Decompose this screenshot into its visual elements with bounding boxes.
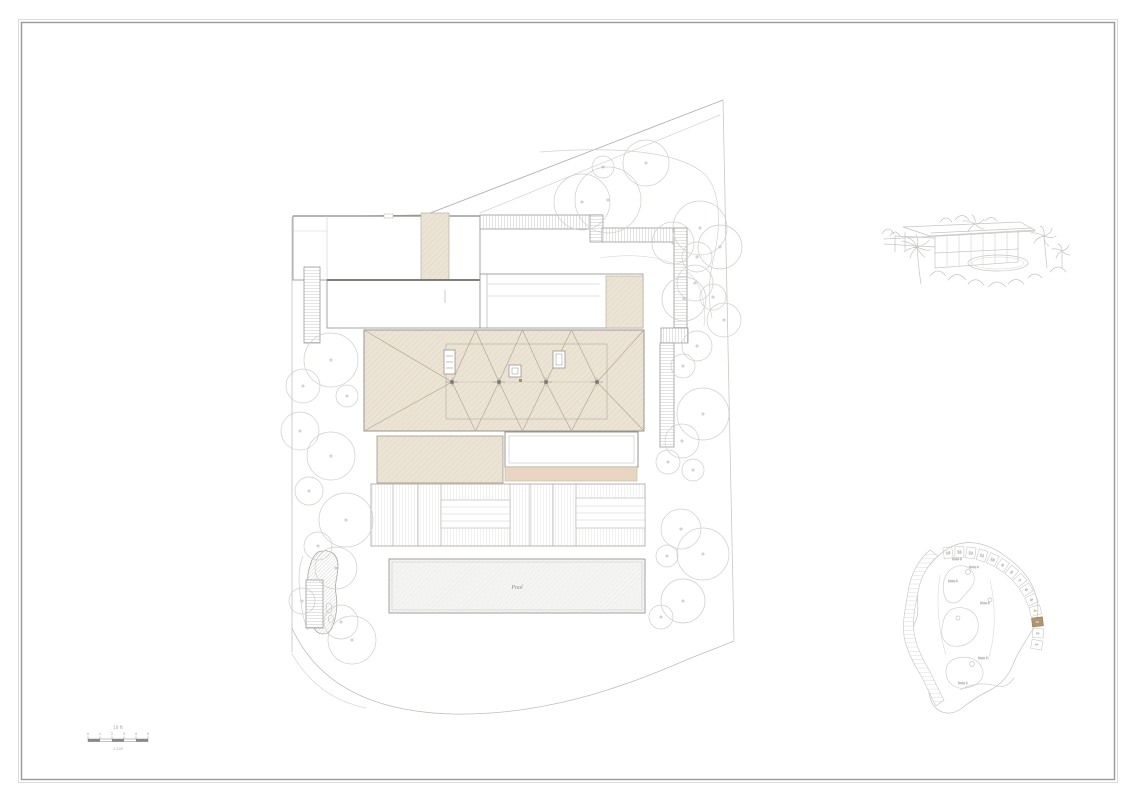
svg-text:2: 2 <box>1036 632 1040 634</box>
scale-bar-title: 10 ft <box>113 725 123 730</box>
svg-text:13: 13 <box>957 550 961 554</box>
svg-text:Hole 5: Hole 5 <box>980 601 990 605</box>
svg-text:0: 0 <box>87 732 89 736</box>
svg-text:Hole 2: Hole 2 <box>948 579 958 583</box>
key-map-terrace-plots <box>903 550 944 706</box>
scale-ratio-note: 1:200 <box>113 747 124 751</box>
pool-label: Pool <box>510 585 523 591</box>
svg-text:Hole 4: Hole 4 <box>969 565 979 569</box>
swimming-pool: Pool <box>389 559 645 613</box>
svg-text:5: 5 <box>1029 598 1034 602</box>
svg-text:3: 3 <box>123 732 125 736</box>
drawing-sheet: Pool <box>0 0 1136 802</box>
location-key-map: 1413121110987654321 Hole 3Hole 4Hole 2Ho… <box>903 543 1043 713</box>
house-elevation-sketch <box>882 215 1070 287</box>
timber-deck <box>371 484 645 546</box>
svg-text:5: 5 <box>147 732 149 736</box>
svg-text:11: 11 <box>979 553 984 558</box>
sketch-boulders <box>930 267 1066 287</box>
key-map-hole-labels: Hole 3Hole 4Hole 2Hole 5Hole 7Hole 1 <box>948 557 990 685</box>
palm-tree-sketch <box>902 215 1070 284</box>
svg-text:1: 1 <box>1034 643 1038 646</box>
scale-bar: 10 ft 012345 1:200 <box>87 725 149 751</box>
architectural-site-plan: Pool <box>0 0 1136 802</box>
svg-text:10: 10 <box>990 557 996 562</box>
svg-text:8: 8 <box>1009 570 1013 574</box>
svg-text:14: 14 <box>946 551 951 556</box>
main-roof <box>364 330 644 431</box>
svg-text:4: 4 <box>135 732 137 736</box>
svg-text:6: 6 <box>1024 588 1029 592</box>
svg-text:Hole 1: Hole 1 <box>958 681 968 685</box>
stone-feature <box>299 551 338 634</box>
svg-text:3: 3 <box>1035 621 1039 624</box>
svg-text:4: 4 <box>1033 609 1037 612</box>
svg-text:7: 7 <box>1017 578 1021 582</box>
sketch-glazing-mullions <box>947 232 1007 267</box>
svg-text:1: 1 <box>99 732 101 736</box>
svg-text:Hole 3: Hole 3 <box>952 557 962 561</box>
lower-roofs <box>377 432 638 483</box>
svg-text:Hole 7: Hole 7 <box>978 656 988 660</box>
svg-text:9: 9 <box>1000 563 1004 568</box>
scale-bar-tick-labels: 012345 <box>87 732 149 736</box>
svg-text:12: 12 <box>968 551 973 556</box>
svg-text:2: 2 <box>111 732 113 736</box>
